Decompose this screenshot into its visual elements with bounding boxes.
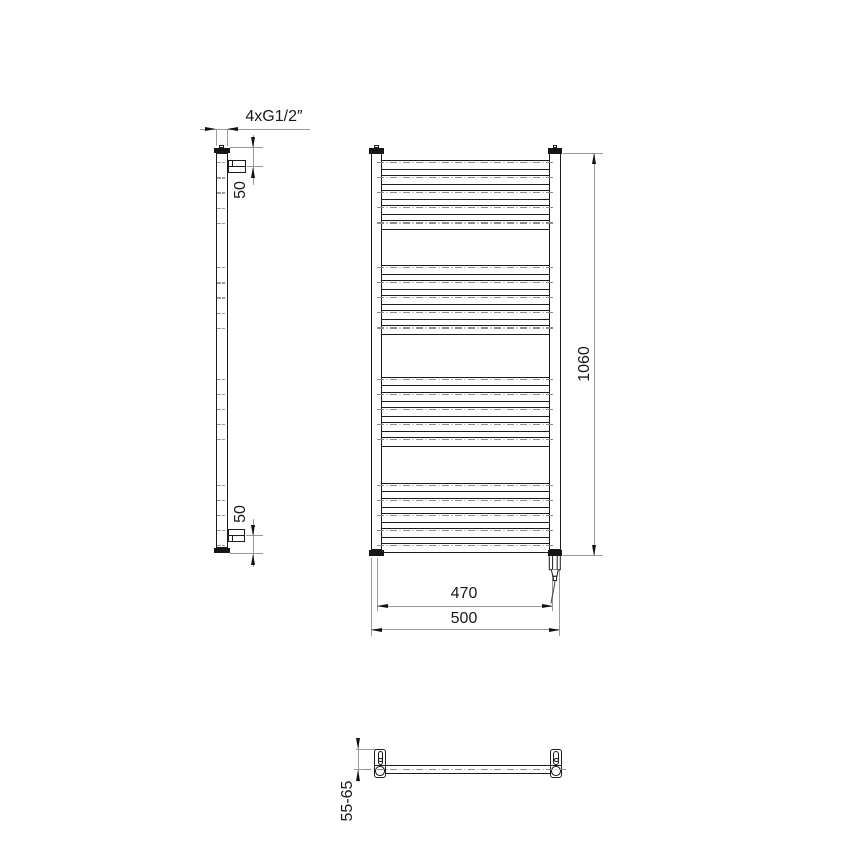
rung-bar-lower xyxy=(382,269,549,275)
rung-centerline xyxy=(377,192,555,193)
rung-centerline xyxy=(377,267,555,268)
side-rung-hidden-dash xyxy=(222,223,225,224)
side-view-top-cap xyxy=(214,148,230,154)
side-rung-hidden-dash xyxy=(222,328,225,329)
side-rung-hidden-dash xyxy=(217,297,220,298)
rung-centerline xyxy=(377,282,555,283)
rung-bar-lower xyxy=(382,517,549,523)
side-rung-hidden-dash xyxy=(217,545,220,546)
rung-centerline xyxy=(377,162,555,163)
rung-bar-lower xyxy=(382,487,549,493)
side-rung-hidden-dash xyxy=(217,328,220,329)
rung-bar-lower xyxy=(382,411,549,417)
label-top-offset: 50 xyxy=(233,178,249,202)
arrowhead xyxy=(251,167,255,178)
rung-bar-lower xyxy=(382,502,549,508)
rung-bar-lower xyxy=(382,441,549,447)
side-rung-hidden-dash xyxy=(217,223,220,224)
side-rung-hidden-dash xyxy=(222,545,225,546)
dimension-line-mount-width xyxy=(377,606,553,607)
side-rung-hidden-dash xyxy=(217,177,220,178)
rung-bar-lower xyxy=(382,532,549,538)
side-rung-hidden-dash xyxy=(217,267,220,268)
rung-centerline xyxy=(377,500,555,501)
side-rung-hidden-dash xyxy=(217,208,220,209)
side-rung-hidden-dash xyxy=(222,379,225,380)
front-top-right-cap xyxy=(548,148,563,154)
rung-centerline xyxy=(377,409,555,410)
right-bracket-screw xyxy=(554,758,559,763)
arrowhead xyxy=(371,628,382,632)
boss-centerline xyxy=(228,535,246,536)
front-view-right-column xyxy=(549,153,561,550)
side-rung-hidden-dash xyxy=(217,409,220,410)
side-rung-hidden-dash xyxy=(217,485,220,486)
rung-bar-lower xyxy=(382,426,549,432)
extension-line xyxy=(230,147,263,148)
rung-centerline xyxy=(377,222,555,223)
label-wall-distance: 55-65 xyxy=(340,778,356,824)
dimension-line-height xyxy=(594,153,595,556)
label-connection-size: 4xG1/2″ xyxy=(242,109,306,125)
side-rung-hidden-dash xyxy=(222,192,225,193)
side-rung-hidden-dash xyxy=(222,297,225,298)
rung-bar-lower xyxy=(382,224,549,230)
side-rung-hidden-dash xyxy=(222,409,225,410)
extension-line xyxy=(563,153,603,154)
side-rung-hidden-dash xyxy=(217,379,220,380)
side-rung-hidden-dash xyxy=(222,162,225,163)
extension-line xyxy=(216,130,217,146)
side-view-tube xyxy=(216,153,227,547)
rung-centerline xyxy=(377,530,555,531)
rung-centerline xyxy=(377,485,555,486)
side-rung-hidden-dash xyxy=(217,530,220,531)
arrowhead xyxy=(227,127,238,131)
side-rung-hidden-dash xyxy=(217,424,220,425)
side-rung-hidden-dash xyxy=(222,439,225,440)
boss-tick xyxy=(232,160,233,167)
rung-bar-lower xyxy=(382,381,549,387)
rung-bar-lower xyxy=(382,194,549,200)
side-view-bottom-cap xyxy=(214,548,230,554)
arrowhead xyxy=(377,604,388,608)
rung-centerline xyxy=(377,439,555,440)
front-top-left-cap xyxy=(369,148,384,154)
arrowhead xyxy=(592,153,596,164)
side-rung-hidden-dash xyxy=(217,313,220,314)
arrowhead xyxy=(592,545,596,556)
extension-line xyxy=(371,558,372,636)
rung-bar-lower xyxy=(382,209,549,215)
front-view-left-column xyxy=(371,153,383,550)
side-rung-hidden-dash xyxy=(222,500,225,501)
side-rung-hidden-dash xyxy=(222,208,225,209)
side-rung-hidden-dash xyxy=(217,515,220,516)
left-bracket-screw xyxy=(378,758,383,763)
label-overall-width: 500 xyxy=(444,611,484,627)
side-rung-hidden-dash xyxy=(222,267,225,268)
arrowhead xyxy=(251,554,255,565)
side-rung-hidden-dash xyxy=(222,282,225,283)
side-rung-hidden-dash xyxy=(217,282,220,283)
arrowhead xyxy=(356,770,360,781)
rung-centerline xyxy=(377,545,555,546)
rung-centerline xyxy=(377,379,555,380)
extension-line xyxy=(230,553,264,554)
rung-centerline xyxy=(377,394,555,395)
top-view-centerline xyxy=(364,769,567,770)
rung-bar-lower xyxy=(382,164,549,170)
side-rung-hidden-dash xyxy=(222,394,225,395)
side-rung-hidden-dash xyxy=(222,530,225,531)
rung-centerline xyxy=(377,327,555,328)
radiator-dimension-drawing: 4xG1/2″ 50 50 1060 470 500 55-65 xyxy=(0,0,868,868)
arrowhead xyxy=(549,628,560,632)
label-height: 1060 xyxy=(577,342,593,386)
rung-centerline xyxy=(377,177,555,178)
side-rung-hidden-dash xyxy=(222,424,225,425)
side-rung-hidden-dash xyxy=(217,162,220,163)
side-rung-hidden-dash xyxy=(217,394,220,395)
rung-bar-lower xyxy=(382,179,549,185)
rung-centerline xyxy=(377,297,555,298)
side-rung-hidden-dash xyxy=(222,313,225,314)
rung-bar-lower xyxy=(382,314,549,320)
rung-centerline xyxy=(377,424,555,425)
label-bottom-offset: 50 xyxy=(233,502,249,526)
right-bracket-tube-section xyxy=(551,766,561,776)
rung-centerline xyxy=(377,312,555,313)
electric-element-and-cable xyxy=(545,554,563,606)
arrowhead xyxy=(205,127,216,131)
side-rung-hidden-dash xyxy=(217,439,220,440)
rung-bar-lower xyxy=(382,547,549,553)
side-rung-hidden-dash xyxy=(222,515,225,516)
arrowhead xyxy=(251,525,255,536)
side-rung-hidden-dash xyxy=(222,485,225,486)
rung-bar-lower xyxy=(382,396,549,402)
side-rung-hidden-dash xyxy=(217,500,220,501)
front-bottom-left-cap xyxy=(369,550,384,556)
left-bracket-tube-section xyxy=(375,766,385,776)
rung-bar-lower xyxy=(382,284,549,290)
side-rung-hidden-dash xyxy=(222,177,225,178)
extension-line xyxy=(227,130,228,146)
rung-centerline xyxy=(377,515,555,516)
label-mount-width: 470 xyxy=(444,586,484,602)
rung-bar-lower xyxy=(382,329,549,335)
boss-tick xyxy=(232,535,233,542)
dimension-line-overall-width xyxy=(371,629,560,630)
arrowhead xyxy=(356,738,360,749)
rung-centerline xyxy=(377,207,555,208)
extension-line xyxy=(563,555,603,556)
side-rung-hidden-dash xyxy=(217,192,220,193)
arrowhead xyxy=(542,604,553,608)
rung-bar-lower xyxy=(382,299,549,305)
boss-centerline xyxy=(228,166,246,167)
arrowhead xyxy=(251,137,255,148)
